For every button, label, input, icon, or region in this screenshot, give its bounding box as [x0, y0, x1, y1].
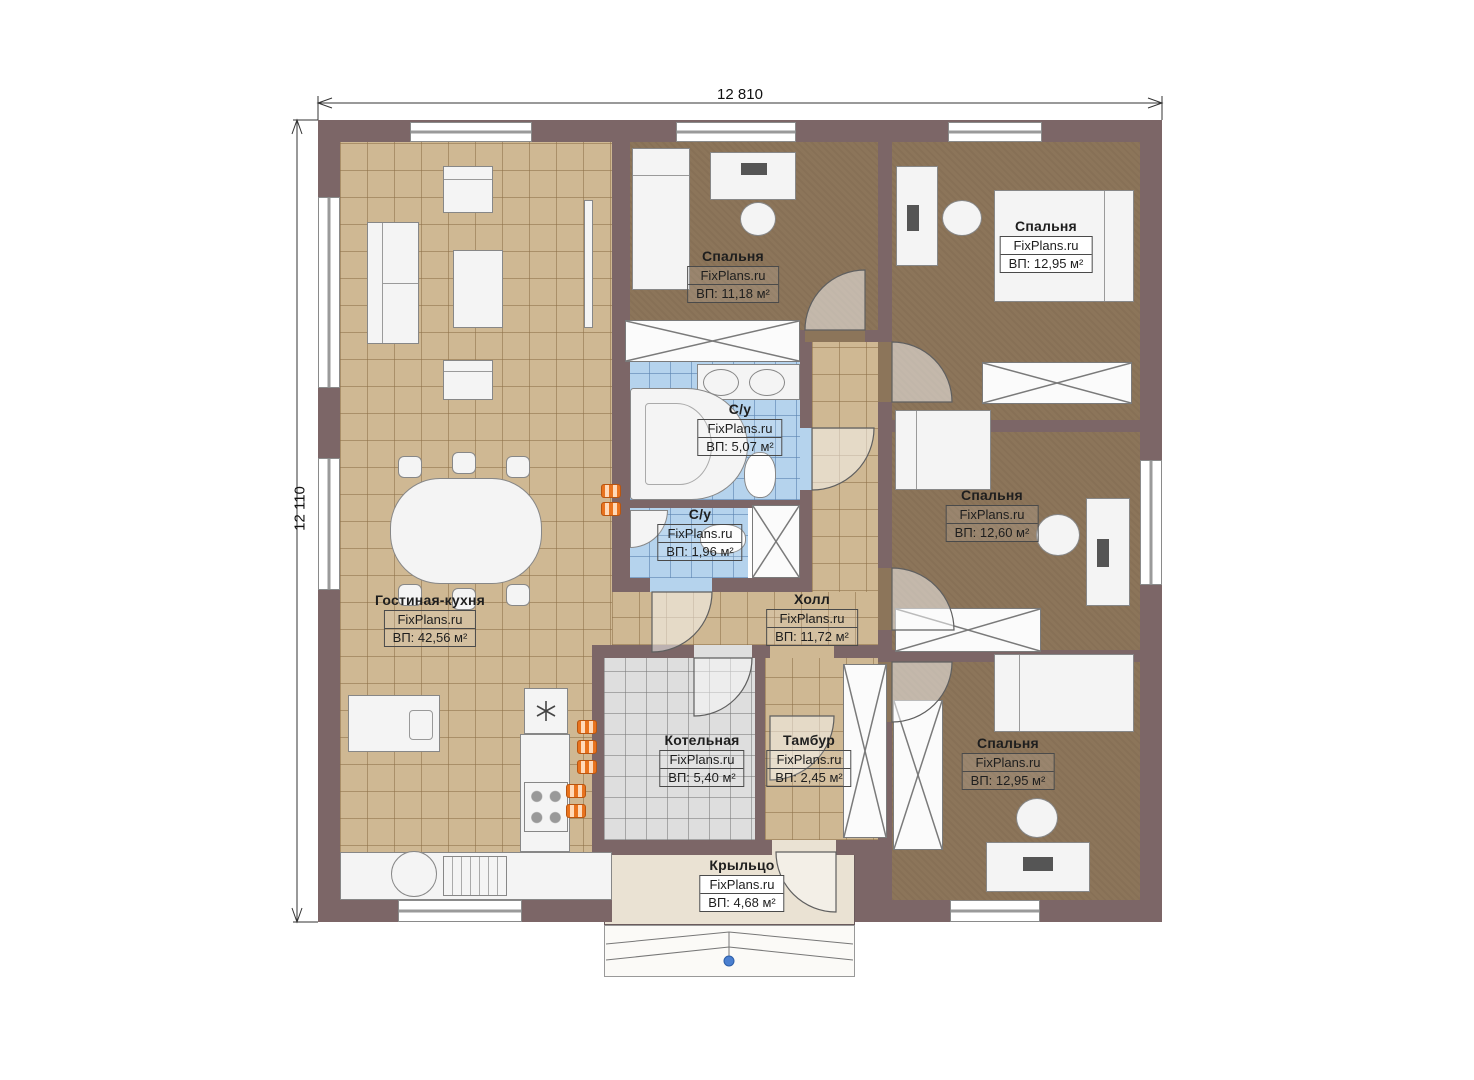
wardrobe-bedroom-top: [625, 320, 800, 362]
room-watermark: FixPlans.ru: [688, 267, 778, 285]
desk-bedroom-top-right: [896, 166, 938, 266]
room-watermark: FixPlans.ru: [660, 751, 743, 769]
window-living-left-2: [318, 458, 340, 590]
dishwasher: [443, 856, 507, 896]
room-watermark: FixPlans.ru: [700, 876, 783, 894]
socket-icon: [601, 484, 621, 498]
kitchen-round-table: [391, 851, 437, 897]
floor-plan-canvas: 12 810 12 110 Спальня FixPlans.ruВП: 11,…: [0, 0, 1474, 1080]
window-bedroom-bottom-right: [950, 900, 1040, 922]
dining-chair: [506, 584, 530, 606]
room-name: Спальня: [962, 735, 1055, 751]
room-label-bedroom-right: Спальня FixPlans.ruВП: 12,60 м²: [946, 487, 1039, 542]
room-watermark: FixPlans.ru: [767, 751, 850, 769]
window-living-bottom: [398, 900, 522, 922]
socket-icon: [577, 720, 597, 734]
stove: [524, 782, 568, 832]
door-gap-vestibule: [770, 645, 834, 658]
bed-bedroom-right: [895, 410, 991, 490]
room-label-bedroom-top-right: Спальня FixPlans.ruВП: 12,95 м²: [1000, 218, 1093, 273]
armchair-2: [443, 360, 493, 400]
coffee-table: [453, 250, 503, 328]
desk-bedroom-right: [1086, 498, 1130, 606]
chair-bedroom-right: [1036, 514, 1080, 556]
room-watermark: FixPlans.ru: [767, 610, 857, 628]
door-gap-bedroom-top-right: [878, 342, 892, 402]
wall-boiler-vestibule: [755, 658, 765, 840]
room-watermark: FixPlans.ru: [947, 506, 1038, 524]
door-gap-bathroom-small: [650, 578, 712, 592]
wardrobe-bedroom-top-right: [982, 362, 1132, 404]
room-name: С/у: [657, 506, 742, 522]
chair-bedroom-top-right: [942, 200, 982, 236]
dining-chair: [506, 456, 530, 478]
room-area: ВП: 4,68 м²: [700, 894, 783, 911]
room-label-boiler-room: Котельная FixPlans.ruВП: 5,40 м²: [659, 732, 744, 787]
sink-2: [749, 369, 785, 396]
door-gap-entrance: [772, 840, 836, 855]
kitchen-island: [348, 695, 440, 752]
room-area: ВП: 12,95 м²: [1001, 255, 1092, 272]
room-name: С/у: [697, 401, 782, 417]
window-living-left-1: [318, 197, 340, 388]
dining-table: [390, 478, 542, 584]
room-name: Крыльцо: [699, 857, 784, 873]
porch-steps: [604, 925, 855, 977]
room-watermark: FixPlans.ru: [1001, 237, 1092, 255]
room-name: Спальня: [946, 487, 1039, 503]
room-area: ВП: 42,56 м²: [385, 629, 476, 646]
door-gap-bedroom-right: [878, 568, 892, 630]
dining-chair: [398, 456, 422, 478]
dimension-width-label: 12 810: [690, 86, 790, 103]
wardrobe-bedroom-bottom-right: [893, 700, 943, 850]
bed-bedroom-top: [632, 148, 690, 290]
room-label-bathroom-small: С/у FixPlans.ruВП: 1,96 м²: [657, 506, 742, 561]
room-label-bedroom-bottom-right: Спальня FixPlans.ruВП: 12,95 м²: [962, 735, 1055, 790]
room-name: Спальня: [687, 248, 779, 264]
door-gap-bedroom-top: [805, 330, 865, 342]
room-name: Котельная: [659, 732, 744, 748]
room-label-porch: Крыльцо FixPlans.ruВП: 4,68 м²: [699, 857, 784, 912]
room-label-bathroom-main: С/у FixPlans.ruВП: 5,07 м²: [697, 401, 782, 456]
room-name: Тамбур: [766, 732, 851, 748]
room-area: ВП: 5,07 м²: [698, 438, 781, 455]
door-gap-bathroom-main: [800, 428, 812, 490]
bed-bedroom-bottom-right: [994, 654, 1134, 732]
sofa: [367, 222, 419, 344]
fan-icon: [525, 689, 567, 733]
room-area: ВП: 11,72 м²: [767, 628, 857, 645]
room-label-living-kitchen: Гостиная-кухня FixPlans.ruВП: 42,56 м²: [375, 592, 485, 647]
room-label-bedroom-top: Спальня FixPlans.ruВП: 11,18 м²: [687, 248, 779, 303]
ventilation-box: [524, 688, 568, 734]
dining-chair: [452, 452, 476, 474]
room-area: ВП: 1,96 м²: [658, 543, 741, 560]
wall-below-baths: [612, 578, 812, 592]
window-living-top: [410, 122, 532, 142]
wardrobe-hall: [752, 505, 800, 578]
window-bedroom-top-right: [948, 122, 1042, 142]
room-area: ВП: 2,45 м²: [767, 769, 850, 786]
room-name: Холл: [766, 591, 858, 607]
room-name: Гостиная-кухня: [375, 592, 485, 608]
door-gap-boiler: [694, 645, 752, 658]
socket-icon: [566, 784, 586, 798]
room-area: ВП: 11,18 м²: [688, 285, 778, 302]
socket-icon: [577, 740, 597, 754]
room-area: ВП: 12,95 м²: [963, 772, 1054, 789]
desk-bedroom-top: [710, 152, 796, 200]
wardrobe-bedroom-right: [895, 608, 1041, 652]
dimension-height-label: 12 110: [292, 459, 309, 559]
room-watermark: FixPlans.ru: [385, 611, 476, 629]
socket-icon: [601, 502, 621, 516]
chair-bedroom-top: [740, 202, 776, 236]
room-watermark: FixPlans.ru: [698, 420, 781, 438]
room-name: Спальня: [1000, 218, 1093, 234]
socket-icon: [566, 804, 586, 818]
window-bedroom-top: [676, 122, 796, 142]
room-area: ВП: 12,60 м²: [947, 524, 1038, 541]
wall-boiler-bottom: [592, 840, 890, 855]
window-bedroom-right: [1140, 460, 1162, 585]
socket-icon: [577, 760, 597, 774]
chair-bedroom-bottom-right: [1016, 798, 1058, 838]
room-area: ВП: 5,40 м²: [660, 769, 743, 786]
room-label-vestibule: Тамбур FixPlans.ruВП: 2,45 м²: [766, 732, 851, 787]
tv-stand: [584, 200, 593, 328]
room-label-hall: Холл FixPlans.ruВП: 11,72 м²: [766, 591, 858, 646]
armchair-1: [443, 166, 493, 213]
toilet-main: [744, 452, 776, 498]
room-watermark: FixPlans.ru: [658, 525, 741, 543]
desk-bedroom-bottom-right: [986, 842, 1090, 892]
wall-bedroom-top-south-b: [865, 330, 878, 342]
room-watermark: FixPlans.ru: [963, 754, 1054, 772]
